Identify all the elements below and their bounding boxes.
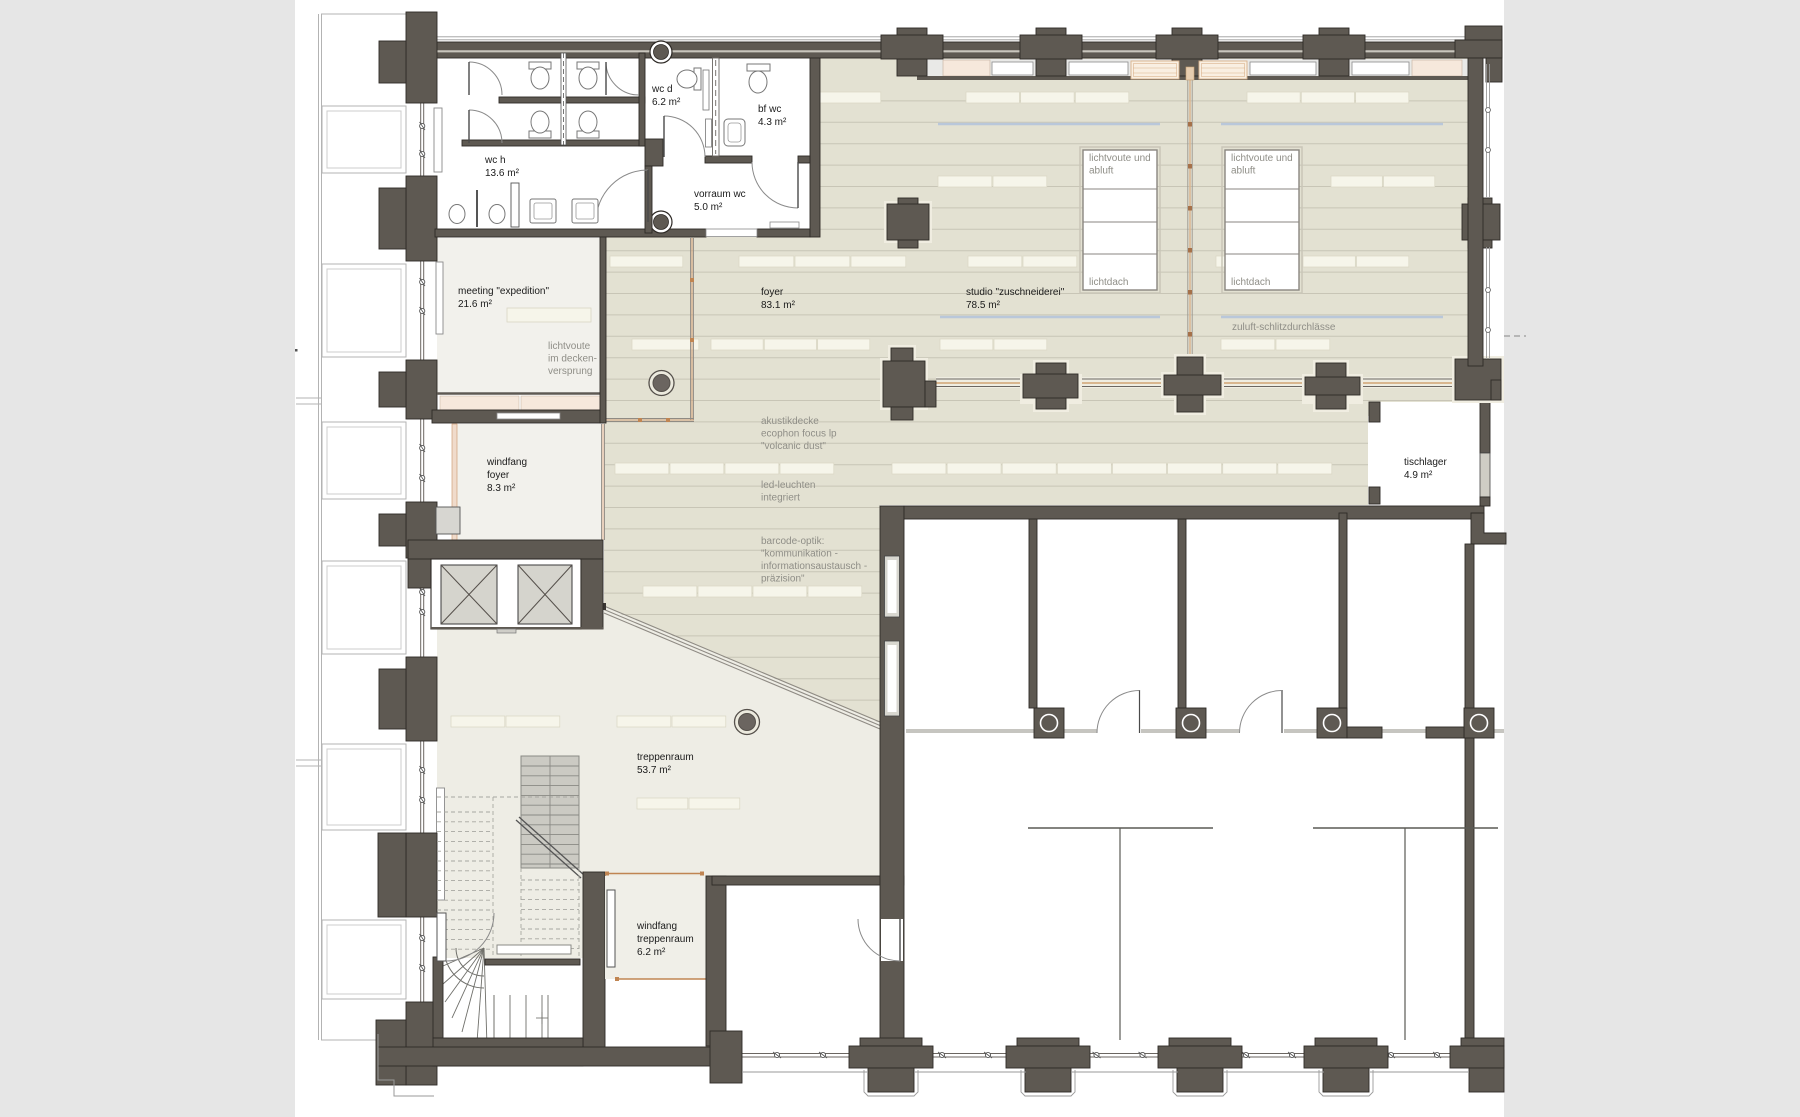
svg-text:lichtvoute und: lichtvoute und (1231, 153, 1293, 164)
svg-text:zuluft-schlitzdurchlässe: zuluft-schlitzdurchlässe (1232, 322, 1336, 333)
svg-text:bf wc: bf wc (758, 104, 781, 115)
svg-text:lichtvoute: lichtvoute (548, 341, 591, 352)
svg-text:treppenraum: treppenraum (637, 934, 694, 945)
svg-text:tischlager: tischlager (1404, 457, 1447, 468)
svg-text:wc d: wc d (651, 84, 673, 95)
svg-text:akustikdecke: akustikdecke (761, 416, 819, 427)
svg-text:foyer: foyer (487, 470, 510, 481)
svg-text:78.5 m²: 78.5 m² (966, 300, 1001, 311)
svg-text:4.3 m²: 4.3 m² (758, 117, 787, 128)
svg-text:versprung: versprung (548, 366, 592, 377)
svg-text:ecophon focus lp: ecophon focus lp (761, 429, 837, 440)
svg-text:integriert: integriert (761, 493, 800, 504)
svg-text:"volcanic dust": "volcanic dust" (761, 441, 826, 452)
svg-text:lichtdach: lichtdach (1089, 277, 1128, 288)
svg-text:abluft: abluft (1089, 166, 1114, 177)
svg-text:informationsaustausch -: informationsaustausch - (761, 561, 867, 572)
svg-text:vorraum wc: vorraum wc (694, 189, 746, 200)
svg-text:lichtvoute und: lichtvoute und (1089, 153, 1151, 164)
svg-text:6.2 m²: 6.2 m² (652, 97, 681, 108)
svg-text:foyer: foyer (761, 287, 784, 298)
svg-text:wc h: wc h (484, 155, 506, 166)
svg-text:windfang: windfang (486, 457, 527, 468)
svg-text:53.7 m²: 53.7 m² (637, 765, 672, 776)
svg-text:5.0 m²: 5.0 m² (694, 202, 723, 213)
svg-text:83.1 m²: 83.1 m² (761, 300, 796, 311)
svg-text:präzision": präzision" (761, 574, 805, 585)
svg-text:4.9 m²: 4.9 m² (1404, 470, 1433, 481)
svg-text:13.6 m²: 13.6 m² (485, 168, 520, 179)
svg-text:im decken-: im decken- (548, 354, 597, 365)
svg-text:lichtdach: lichtdach (1231, 277, 1270, 288)
svg-text:21.6 m²: 21.6 m² (458, 299, 493, 310)
svg-text:6.2 m²: 6.2 m² (637, 947, 666, 958)
svg-text:abluft: abluft (1231, 166, 1256, 177)
svg-text:8.3 m²: 8.3 m² (487, 483, 516, 494)
svg-text:"kommunikation -: "kommunikation - (761, 549, 838, 560)
svg-text:barcode-optik:: barcode-optik: (761, 536, 824, 547)
svg-text:windfang: windfang (636, 921, 677, 932)
svg-text:meeting "expedition": meeting "expedition" (458, 286, 549, 297)
svg-text:treppenraum: treppenraum (637, 752, 694, 763)
svg-text:studio "zuschneiderei": studio "zuschneiderei" (966, 287, 1065, 298)
svg-text:led-leuchten: led-leuchten (761, 480, 815, 491)
